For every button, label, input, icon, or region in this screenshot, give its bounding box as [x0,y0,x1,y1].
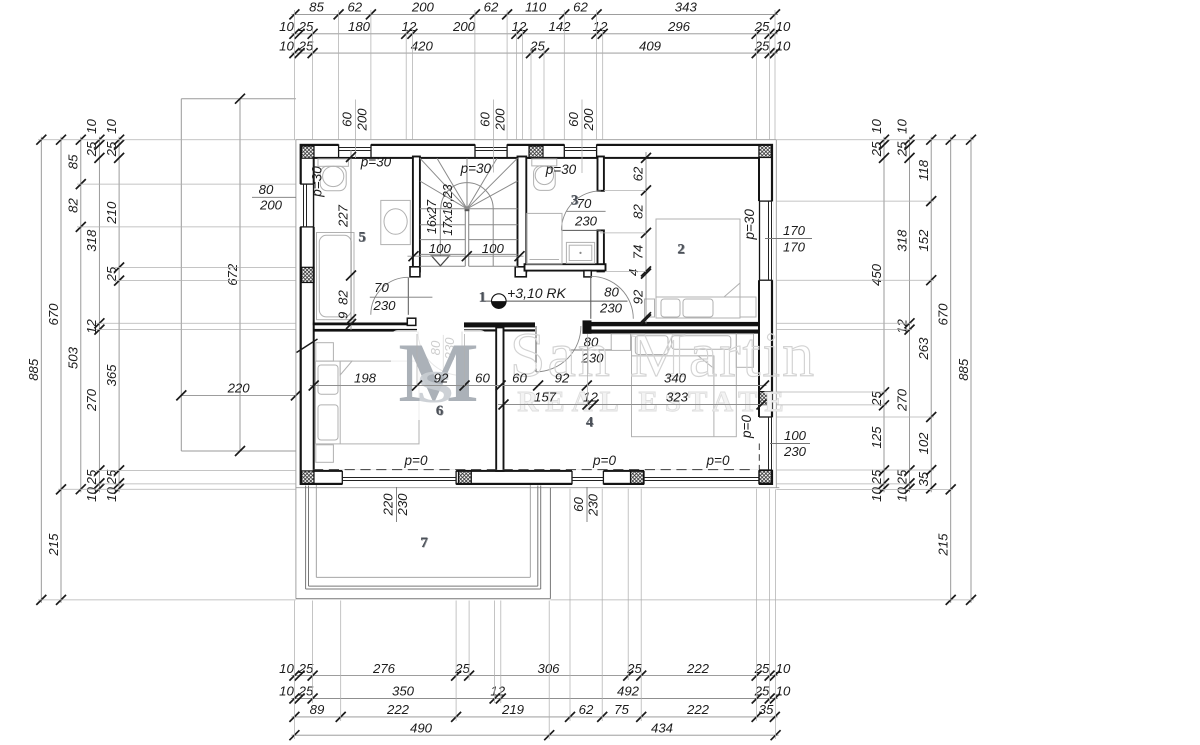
svg-text:200: 200 [355,108,370,132]
svg-text:REAL ESTATE: REAL ESTATE [517,386,790,418]
svg-text:p=30: p=30 [545,162,577,177]
svg-text:p=30: p=30 [742,209,757,241]
svg-text:215: 215 [936,533,951,557]
svg-text:420: 420 [411,38,434,53]
svg-text:215: 215 [46,533,61,557]
svg-text:7: 7 [420,535,428,551]
svg-text:672: 672 [225,263,240,286]
svg-text:25: 25 [529,38,545,53]
svg-text:25: 25 [84,141,99,157]
svg-text:323: 323 [666,389,689,404]
svg-text:25: 25 [894,469,909,485]
svg-text:220: 220 [380,493,395,517]
svg-text:62: 62 [484,0,499,15]
svg-text:10: 10 [869,119,884,134]
svg-text:885: 885 [956,358,971,381]
svg-text:12: 12 [490,684,505,699]
svg-text:60: 60 [566,112,581,127]
svg-text:492: 492 [617,684,640,699]
svg-text:60: 60 [512,370,527,385]
svg-text:10: 10 [279,661,294,676]
svg-text:85: 85 [66,154,81,169]
svg-text:35: 35 [916,471,931,486]
svg-text:409: 409 [639,38,662,53]
svg-text:62: 62 [347,0,362,15]
svg-text:25: 25 [298,661,314,676]
svg-text:92: 92 [434,370,449,385]
svg-text:p=0: p=0 [706,453,730,468]
svg-text:222: 222 [386,702,410,717]
svg-text:25: 25 [104,469,119,485]
svg-text:180: 180 [348,19,371,34]
svg-text:230: 230 [372,298,396,313]
svg-text:200: 200 [581,108,596,132]
svg-text:100: 100 [429,241,452,256]
svg-text:10: 10 [894,487,909,502]
svg-text:12: 12 [593,19,608,34]
svg-text:3: 3 [571,193,579,209]
svg-text:16x27: 16x27 [425,199,439,234]
svg-text:100: 100 [482,241,505,256]
svg-text:62: 62 [573,0,588,15]
svg-text:62: 62 [579,702,594,717]
svg-text:10: 10 [776,38,791,53]
svg-text:450: 450 [869,263,884,286]
svg-text:12: 12 [84,319,99,334]
svg-text:25: 25 [104,141,119,157]
svg-text:89: 89 [310,702,325,717]
svg-text:227: 227 [335,204,350,228]
svg-text:17x18,23: 17x18,23 [441,184,455,235]
svg-text:25: 25 [869,469,884,485]
svg-text:6: 6 [436,403,444,419]
svg-text:82: 82 [630,204,645,219]
svg-text:276: 276 [372,661,396,676]
svg-text:+3,10 RK: +3,10 RK [507,285,566,301]
svg-text:200: 200 [411,0,435,15]
svg-text:270: 270 [84,388,99,412]
svg-text:9: 9 [335,311,350,319]
svg-text:10: 10 [84,119,99,134]
svg-text:318: 318 [84,229,99,252]
svg-text:10: 10 [84,487,99,502]
svg-text:318: 318 [894,229,909,252]
svg-text:100: 100 [784,428,807,443]
svg-text:210: 210 [104,201,119,225]
svg-text:885: 885 [26,358,41,381]
svg-text:60: 60 [571,497,586,512]
svg-text:p=30: p=30 [310,166,325,198]
svg-text:142: 142 [548,19,571,34]
svg-text:12: 12 [894,319,909,334]
svg-text:25: 25 [754,684,770,699]
svg-text:220: 220 [227,381,251,396]
svg-text:670: 670 [46,303,61,326]
svg-text:4: 4 [586,415,594,431]
svg-text:p=0: p=0 [404,453,428,468]
svg-text:60: 60 [340,112,355,127]
svg-text:25: 25 [869,391,884,407]
svg-text:230: 230 [599,301,623,316]
svg-text:80: 80 [604,285,619,300]
svg-text:4: 4 [626,269,641,276]
svg-text:10: 10 [776,684,791,699]
svg-text:5: 5 [358,230,366,246]
svg-text:2: 2 [677,242,685,258]
svg-text:157: 157 [534,389,557,404]
svg-text:200: 200 [452,19,476,34]
svg-text:25: 25 [626,661,642,676]
svg-text:118: 118 [916,159,931,181]
svg-text:670: 670 [936,303,951,326]
svg-text:230: 230 [586,493,601,517]
svg-text:85: 85 [309,0,324,15]
svg-text:10: 10 [104,487,119,502]
svg-text:25: 25 [84,469,99,485]
svg-text:222: 222 [686,661,710,676]
svg-text:75: 75 [614,702,629,717]
svg-text:p=30: p=30 [360,155,392,170]
svg-text:82: 82 [335,290,350,305]
svg-text:219: 219 [501,702,525,717]
svg-text:25: 25 [869,141,884,157]
svg-text:35: 35 [759,702,774,717]
svg-text:200: 200 [259,198,283,213]
svg-text:25: 25 [454,661,470,676]
svg-text:25: 25 [754,38,770,53]
svg-text:25: 25 [298,684,314,699]
svg-text:296: 296 [667,19,691,34]
svg-text:10: 10 [279,38,294,53]
svg-text:490: 490 [410,720,433,735]
svg-text:60: 60 [475,370,490,385]
svg-text:263: 263 [916,337,931,361]
svg-text:434: 434 [651,720,673,735]
svg-text:343: 343 [675,0,698,15]
svg-text:12: 12 [402,19,417,34]
svg-text:365: 365 [104,364,119,387]
svg-text:82: 82 [66,198,81,213]
svg-text:12: 12 [512,19,527,34]
svg-text:10: 10 [869,487,884,502]
svg-text:p=0: p=0 [739,415,754,439]
svg-text:230: 230 [395,493,410,517]
svg-text:10: 10 [776,19,791,34]
svg-text:10: 10 [104,119,119,134]
svg-text:10: 10 [776,661,791,676]
svg-text:p=30: p=30 [460,161,492,176]
svg-text:25: 25 [754,661,770,676]
svg-text:110: 110 [525,0,547,15]
svg-text:350: 350 [392,684,415,699]
svg-text:10: 10 [279,684,294,699]
svg-text:74: 74 [630,245,645,260]
svg-text:170: 170 [783,223,806,238]
svg-text:125: 125 [869,426,884,449]
svg-text:198: 198 [354,370,377,385]
svg-text:222: 222 [686,702,710,717]
svg-text:25: 25 [104,266,119,282]
svg-text:200: 200 [493,108,508,132]
svg-text:25: 25 [754,19,770,34]
svg-text:92: 92 [630,289,645,304]
svg-text:10: 10 [894,119,909,134]
svg-text:340: 340 [664,370,687,385]
svg-text:152: 152 [916,229,931,252]
svg-text:1: 1 [479,290,487,306]
svg-text:70: 70 [374,280,389,295]
svg-text:p=0: p=0 [592,453,616,468]
svg-text:25: 25 [298,19,314,34]
svg-text:230: 230 [783,444,807,459]
svg-text:62: 62 [630,166,645,181]
svg-text:25: 25 [894,141,909,157]
svg-text:170: 170 [783,240,806,255]
svg-text:102: 102 [916,432,931,455]
svg-text:230: 230 [574,214,598,229]
svg-text:70: 70 [577,196,592,211]
svg-text:10: 10 [279,19,294,34]
svg-text:12: 12 [583,389,598,404]
svg-text:503: 503 [66,346,81,369]
svg-text:25: 25 [298,38,314,53]
svg-text:92: 92 [555,370,570,385]
svg-text:60: 60 [478,112,493,127]
svg-text:270: 270 [894,388,909,412]
